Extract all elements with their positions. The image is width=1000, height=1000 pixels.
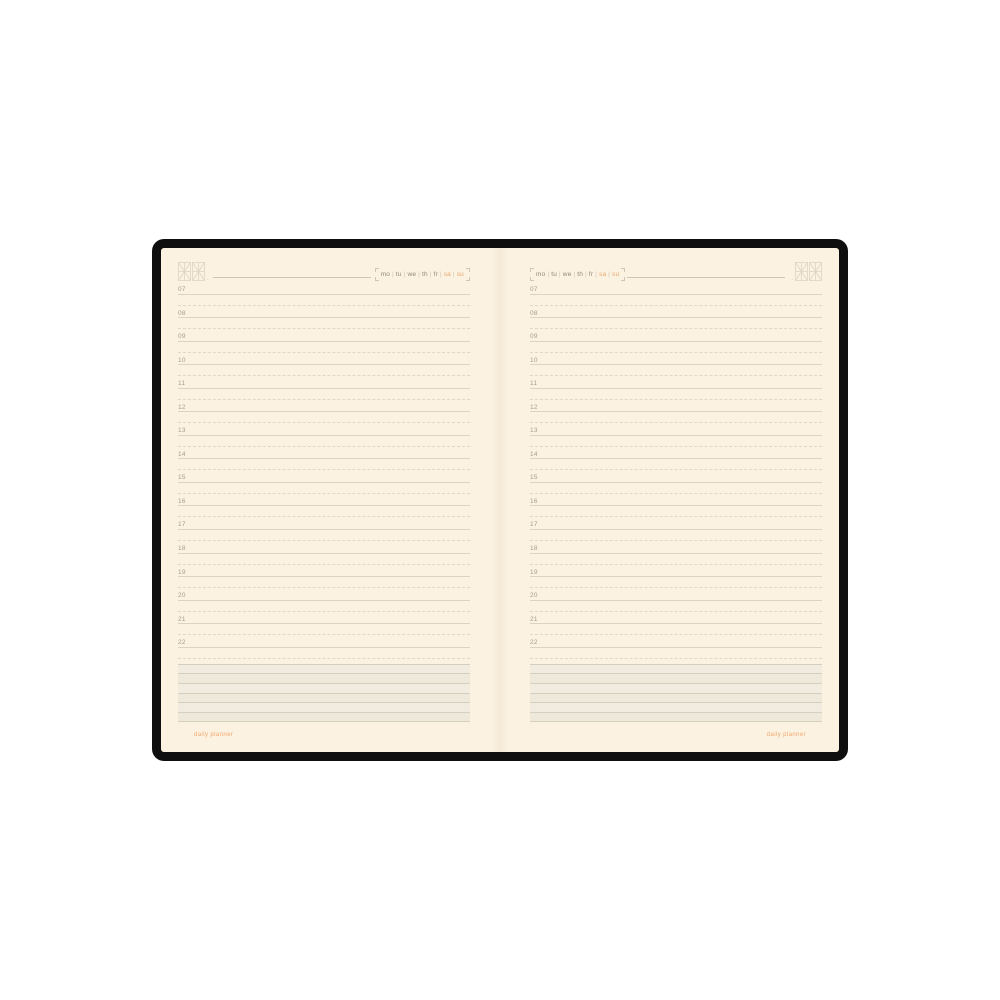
half-hour-rule [530, 352, 822, 353]
hour-rule [178, 647, 470, 648]
weekday-row: mo|tu|we|th|fr|sa|su [530, 268, 625, 281]
hour-label: 12 [178, 404, 186, 411]
half-hour-rule [178, 305, 470, 306]
half-hour-rule [178, 634, 470, 635]
half-hour-rule [178, 540, 470, 541]
weekday-th: th [422, 271, 428, 278]
weekday-su: su [457, 271, 464, 278]
half-hour-rule [178, 564, 470, 565]
hour-slot-14: 14 [178, 450, 470, 474]
weekday-sa: sa [599, 271, 606, 278]
half-hour-rule [530, 446, 822, 447]
date-entry-boxes [178, 262, 205, 281]
hour-label: 12 [530, 404, 538, 411]
hour-rule [178, 317, 470, 318]
hour-rule [530, 600, 822, 601]
hour-label: 07 [178, 286, 186, 293]
note-row [530, 713, 822, 723]
weekday-separator: | [453, 272, 455, 278]
weekday-separator: | [608, 272, 610, 278]
hour-label: 16 [530, 498, 538, 505]
hour-rule [530, 364, 822, 365]
hour-rule [178, 411, 470, 412]
hour-label: 19 [530, 569, 538, 576]
page-footer: daily planner [530, 729, 822, 741]
hour-slot-09: 09 [530, 332, 822, 356]
half-hour-rule [178, 611, 470, 612]
date-entry-boxes [795, 262, 822, 281]
hour-rule [178, 505, 470, 506]
weekday-we: we [407, 271, 416, 278]
hour-slot-16: 16 [530, 497, 822, 521]
hour-rule [530, 553, 822, 554]
weekday-th: th [577, 271, 583, 278]
hour-label: 21 [178, 616, 186, 623]
half-hour-rule [530, 469, 822, 470]
half-hour-rule [530, 305, 822, 306]
note-row [178, 684, 470, 694]
half-hour-rule [178, 328, 470, 329]
hour-label: 17 [178, 521, 186, 528]
hour-label: 10 [530, 357, 538, 364]
note-row [178, 703, 470, 713]
hour-slot-15: 15 [178, 473, 470, 497]
notes-grid [178, 664, 470, 723]
hour-slot-08: 08 [178, 309, 470, 333]
note-row [530, 684, 822, 694]
hour-label: 22 [178, 639, 186, 646]
half-hour-rule [178, 352, 470, 353]
page-header: . mo|tu|we|th|fr|sa|su [178, 261, 470, 281]
weekday-su: su [612, 271, 619, 278]
product-photo: . mo|tu|we|th|fr|sa|su 07080910111213141… [0, 0, 1000, 1000]
hour-rule [178, 553, 470, 554]
hour-slot-07: 07 [530, 285, 822, 309]
hour-rule [530, 341, 822, 342]
hour-slot-09: 09 [178, 332, 470, 356]
page-footer: daily planner [178, 729, 470, 741]
hour-slot-22: 22 [530, 638, 822, 662]
half-hour-rule [530, 493, 822, 494]
hour-rule [530, 482, 822, 483]
weekday-fr: fr [589, 271, 593, 278]
hour-rule [530, 294, 822, 295]
date-dot: . [205, 277, 211, 281]
weekday-mo: mo [536, 271, 545, 278]
half-hour-rule [178, 516, 470, 517]
hour-slot-12: 12 [530, 403, 822, 427]
note-row [178, 674, 470, 684]
hour-label: 10 [178, 357, 186, 364]
hour-rule [178, 341, 470, 342]
weekday-separator: | [418, 272, 420, 278]
note-row [530, 703, 822, 713]
hour-rule [178, 576, 470, 577]
hour-label: 07 [530, 286, 538, 293]
note-row [530, 694, 822, 704]
hour-slot-10: 10 [178, 356, 470, 380]
half-hour-rule [178, 658, 470, 659]
half-hour-rule [530, 375, 822, 376]
half-hour-rule [530, 328, 822, 329]
weekday-we: we [563, 271, 572, 278]
hour-rule [530, 505, 822, 506]
half-hour-rule [178, 469, 470, 470]
weekday-row: mo|tu|we|th|fr|sa|su [375, 268, 470, 281]
hour-label: 18 [530, 545, 538, 552]
hour-label: 15 [530, 474, 538, 481]
half-hour-rule [178, 493, 470, 494]
half-hour-rule [530, 422, 822, 423]
weekday-separator: | [595, 272, 597, 278]
half-hour-rule [530, 611, 822, 612]
hour-slot-17: 17 [530, 520, 822, 544]
hour-slot-22: 22 [178, 638, 470, 662]
hour-label: 21 [530, 616, 538, 623]
hour-rule [178, 529, 470, 530]
hour-slot-18: 18 [178, 544, 470, 568]
hour-label: 20 [178, 592, 186, 599]
hour-slot-21: 21 [530, 615, 822, 639]
hour-slot-07: 07 [178, 285, 470, 309]
half-hour-rule [530, 516, 822, 517]
brand-tag: daily planner [757, 729, 816, 741]
hour-rule [530, 317, 822, 318]
half-hour-rule [530, 587, 822, 588]
hours-list: 07080910111213141516171819202122 [530, 285, 822, 662]
date-write-line [627, 276, 785, 278]
page-header: . mo|tu|we|th|fr|sa|su [530, 261, 822, 281]
hour-slot-11: 11 [530, 379, 822, 403]
hour-label: 11 [530, 380, 537, 387]
weekday-separator: | [559, 272, 561, 278]
weekday-separator: | [440, 272, 442, 278]
hour-slot-13: 13 [530, 426, 822, 450]
hour-label: 14 [530, 451, 538, 458]
hour-label: 16 [178, 498, 186, 505]
weekday-mo: mo [381, 271, 390, 278]
hour-rule [178, 388, 470, 389]
hour-slot-12: 12 [178, 403, 470, 427]
hour-label: 18 [178, 545, 186, 552]
hour-rule [530, 388, 822, 389]
half-hour-rule [178, 446, 470, 447]
hour-slot-08: 08 [530, 309, 822, 333]
hour-slot-14: 14 [530, 450, 822, 474]
hour-rule [178, 600, 470, 601]
half-hour-rule [530, 658, 822, 659]
weekday-tu: tu [396, 271, 402, 278]
page-left: . mo|tu|we|th|fr|sa|su 07080910111213141… [161, 248, 500, 752]
hour-label: 15 [178, 474, 186, 481]
hour-rule [178, 623, 470, 624]
hour-label: 09 [530, 333, 538, 340]
hour-slot-10: 10 [530, 356, 822, 380]
hour-label: 08 [178, 310, 186, 317]
notebook-cover: . mo|tu|we|th|fr|sa|su 07080910111213141… [152, 239, 848, 761]
half-hour-rule [530, 634, 822, 635]
half-hour-rule [530, 564, 822, 565]
hour-slot-21: 21 [178, 615, 470, 639]
weekday-separator: | [392, 272, 394, 278]
weekday-separator: | [430, 272, 432, 278]
hour-rule [530, 435, 822, 436]
weekday-sa: sa [444, 271, 451, 278]
hour-slot-19: 19 [530, 568, 822, 592]
hour-slot-20: 20 [530, 591, 822, 615]
half-hour-rule [178, 375, 470, 376]
hour-label: 08 [530, 310, 538, 317]
date-write-line [213, 276, 371, 278]
hour-rule [530, 647, 822, 648]
hour-rule [178, 435, 470, 436]
hour-slot-15: 15 [530, 473, 822, 497]
hour-rule [530, 623, 822, 624]
hours-list: 07080910111213141516171819202122 [178, 285, 470, 662]
weekday-separator: | [404, 272, 406, 278]
hour-slot-11: 11 [178, 379, 470, 403]
note-row [178, 665, 470, 675]
hour-label: 13 [178, 427, 186, 434]
hour-label: 13 [530, 427, 538, 434]
hour-rule [178, 482, 470, 483]
half-hour-rule [178, 399, 470, 400]
hour-label: 14 [178, 451, 186, 458]
note-row [530, 674, 822, 684]
hour-slot-13: 13 [178, 426, 470, 450]
hour-rule [178, 364, 470, 365]
hour-rule [530, 576, 822, 577]
hour-label: 20 [530, 592, 538, 599]
brand-tag: daily planner [184, 729, 243, 741]
note-row [530, 665, 822, 675]
hour-rule [530, 411, 822, 412]
notes-grid [530, 664, 822, 723]
hour-rule [530, 529, 822, 530]
hour-label: 11 [178, 380, 185, 387]
note-row [178, 694, 470, 704]
notebook-open-pages: . mo|tu|we|th|fr|sa|su 07080910111213141… [161, 248, 839, 752]
hour-slot-18: 18 [530, 544, 822, 568]
weekday-separator: | [574, 272, 576, 278]
hour-label: 17 [530, 521, 538, 528]
hour-rule [178, 294, 470, 295]
half-hour-rule [178, 422, 470, 423]
half-hour-rule [178, 587, 470, 588]
half-hour-rule [530, 540, 822, 541]
weekday-fr: fr [434, 271, 438, 278]
page-right: . mo|tu|we|th|fr|sa|su 07080910111213141… [500, 248, 839, 752]
hour-slot-20: 20 [178, 591, 470, 615]
weekday-separator: | [547, 272, 549, 278]
note-row [178, 713, 470, 723]
hour-rule [178, 458, 470, 459]
hour-label: 22 [530, 639, 538, 646]
weekday-tu: tu [551, 271, 557, 278]
hour-slot-16: 16 [178, 497, 470, 521]
hour-slot-17: 17 [178, 520, 470, 544]
hour-label: 09 [178, 333, 186, 340]
hour-rule [530, 458, 822, 459]
hour-label: 19 [178, 569, 186, 576]
hour-slot-19: 19 [178, 568, 470, 592]
half-hour-rule [530, 399, 822, 400]
weekday-separator: | [585, 272, 587, 278]
